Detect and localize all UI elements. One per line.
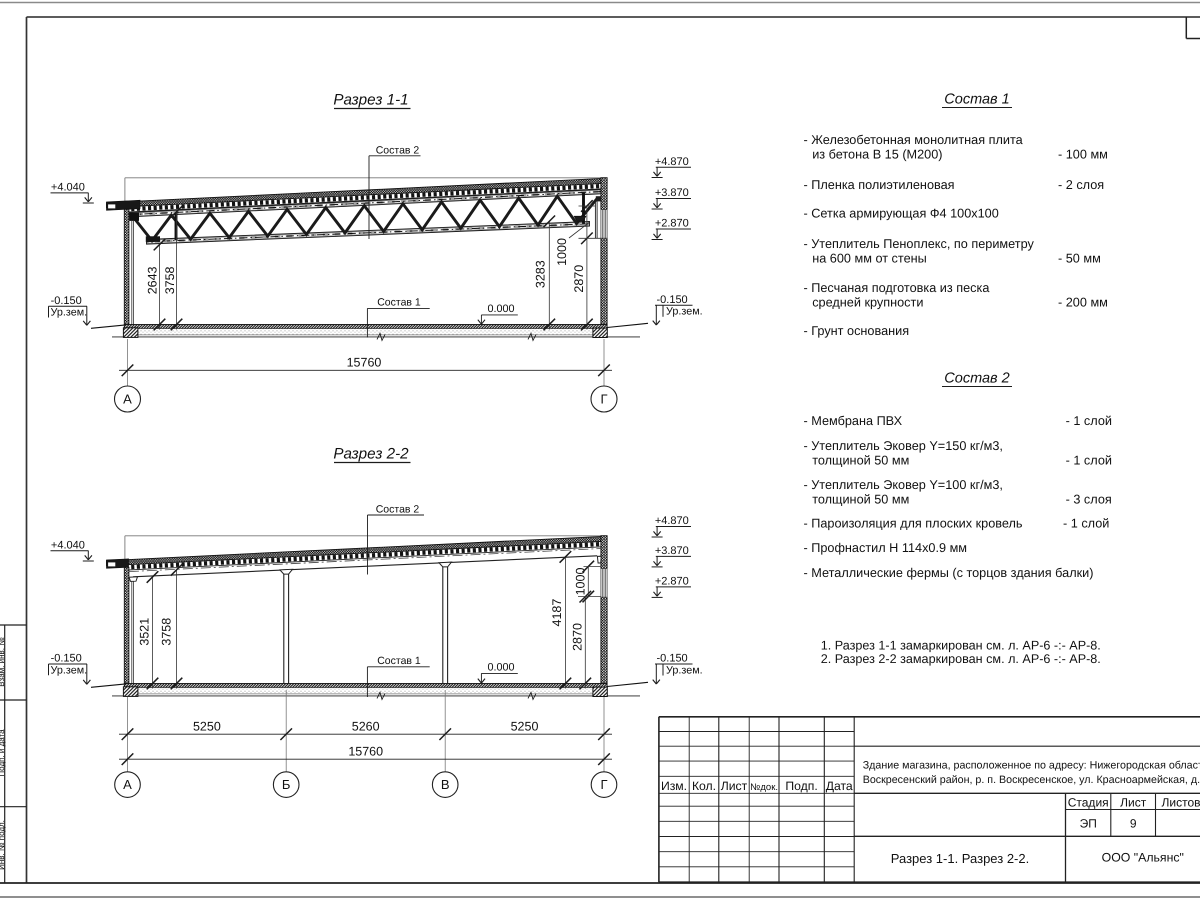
svg-text:Ур.зем.: Ур.зем. <box>51 664 88 676</box>
svg-text:3521: 3521 <box>138 618 152 646</box>
svg-text:5260: 5260 <box>352 720 380 734</box>
svg-text:Лист: Лист <box>1120 795 1147 809</box>
svg-text:- 50 мм: - 50 мм <box>1058 252 1101 266</box>
svg-text:Разрез 1-1. Разрез 2-2.: Разрез 1-1. Разрез 2-2. <box>891 851 1029 866</box>
svg-text:Здание магазина, расположенное: Здание магазина, расположенное по адресу… <box>863 760 1200 772</box>
svg-text:Разрез 1-1: Разрез 1-1 <box>333 92 408 109</box>
svg-text:3758: 3758 <box>163 266 177 294</box>
svg-text:- Мембрана ПВХ: - Мембрана ПВХ <box>804 414 903 428</box>
svg-text:1000: 1000 <box>555 238 569 266</box>
svg-text:2870: 2870 <box>572 265 586 293</box>
svg-text:+4.040: +4.040 <box>51 539 85 551</box>
svg-text:+4.870: +4.870 <box>655 156 689 168</box>
svg-text:А: А <box>123 392 132 407</box>
svg-text:2643: 2643 <box>146 266 160 294</box>
svg-text:Состав 2: Состав 2 <box>944 371 1009 387</box>
svg-text:9: 9 <box>1130 817 1137 831</box>
svg-text:5250: 5250 <box>193 720 221 734</box>
svg-text:- Профнастил Н 114х0.9 мм: - Профнастил Н 114х0.9 мм <box>804 541 968 555</box>
svg-text:+3.870: +3.870 <box>655 545 689 557</box>
svg-text:- Железобетонная монолитная п: - Железобетонная монолитная плита <box>804 133 1024 147</box>
svg-text:+2.870: +2.870 <box>655 218 689 230</box>
svg-text:ООО "Альянс": ООО "Альянс" <box>1102 851 1184 865</box>
svg-text:- Грунт основания: - Грунт основания <box>804 324 910 338</box>
svg-text:- 2 слоя: - 2 слоя <box>1058 178 1104 192</box>
svg-text:- Утеплитель Эковер Y=100 кг/м: - Утеплитель Эковер Y=100 кг/м3, <box>804 478 1003 492</box>
svg-text:- Пароизоляция для плоских кро: - Пароизоляция для плоских кровель <box>804 517 1023 531</box>
svg-text:из бетона В 15 (М200): из бетона В 15 (М200) <box>812 148 942 162</box>
svg-text:- 1 слой: - 1 слой <box>1066 454 1112 468</box>
svg-text:Состав 1: Состав 1 <box>377 297 421 309</box>
svg-text:Разрез 2-2: Разрез 2-2 <box>333 446 409 463</box>
svg-text:А: А <box>123 777 132 792</box>
svg-text:5250: 5250 <box>511 720 539 734</box>
svg-text:Состав 1: Состав 1 <box>944 92 1009 108</box>
svg-text:- 1 слой: - 1 слой <box>1063 517 1109 531</box>
svg-text:1. Разрез 1-1 замаркирован см.: 1. Разрез 1-1 замаркирован см. л. АР-6 -… <box>821 639 1101 653</box>
svg-text:4187: 4187 <box>550 599 564 627</box>
svg-text:средней крупности: средней крупности <box>812 296 923 310</box>
svg-text:+2.870: +2.870 <box>655 576 689 588</box>
svg-text:Ур.зем.: Ур.зем. <box>51 307 88 319</box>
svg-text:толщиной 50 мм: толщиной 50 мм <box>812 493 909 507</box>
svg-text:- Утеплитель Эковер Y=150 кг/м: - Утеплитель Эковер Y=150 кг/м3, <box>804 439 1003 453</box>
svg-text:- Песчаная подготовка из песка: - Песчаная подготовка из песка <box>804 281 991 295</box>
svg-text:- Металлические фермы (с торцо: - Металлические фермы (с торцов здания б… <box>804 566 1094 580</box>
svg-text:-0.150: -0.150 <box>51 295 82 307</box>
svg-text:Воскресенский район, р. п. Вос: Воскресенский район, р. п. Воскресенское… <box>863 774 1200 786</box>
svg-text:№док.: №док. <box>750 782 778 793</box>
svg-text:Лист: Лист <box>721 779 748 793</box>
svg-text:- Сетка армирующая Ф4 100х100: - Сетка армирующая Ф4 100х100 <box>804 207 999 221</box>
svg-text:- 100 мм: - 100 мм <box>1058 148 1108 162</box>
svg-text:Б: Б <box>282 777 291 792</box>
svg-text:Состав 2: Состав 2 <box>376 144 420 156</box>
svg-text:- 200 мм: - 200 мм <box>1058 296 1108 310</box>
svg-text:- Пленка полиэтиленовая: - Пленка полиэтиленовая <box>804 178 955 192</box>
svg-text:+4.040: +4.040 <box>51 182 85 194</box>
svg-text:Состав 1: Состав 1 <box>377 655 421 667</box>
svg-text:2. Разрез 2-2 замаркирован см.: 2. Разрез 2-2 замаркирован см. л. АР-6 -… <box>821 652 1101 666</box>
svg-text:3758: 3758 <box>160 618 174 646</box>
svg-text:ЭП: ЭП <box>1080 817 1097 831</box>
svg-text:Ур.зем.: Ур.зем. <box>666 664 703 676</box>
svg-text:15760: 15760 <box>348 745 383 759</box>
svg-text:- Утеплитель Пеноплекс, по пер: - Утеплитель Пеноплекс, по периметру <box>804 237 1035 251</box>
svg-text:Изм.: Изм. <box>661 779 687 793</box>
svg-text:толщиной 50 мм: толщиной 50 мм <box>812 454 909 468</box>
svg-text:2870: 2870 <box>570 623 584 651</box>
svg-text:3283: 3283 <box>534 260 548 288</box>
svg-text:15760: 15760 <box>347 356 382 370</box>
svg-text:Инв. № подл.: Инв. № подл. <box>0 820 6 870</box>
svg-text:на 600 мм от стены: на 600 мм от стены <box>812 252 927 266</box>
svg-text:- 3 слоя: - 3 слоя <box>1066 493 1112 507</box>
svg-text:Г: Г <box>600 392 607 407</box>
svg-text:Взам. инв. №: Взам. инв. № <box>0 637 6 687</box>
svg-text:+3.870: +3.870 <box>655 187 689 199</box>
svg-text:Листов: Листов <box>1162 795 1200 809</box>
svg-text:Ур.зем.: Ур.зем. <box>666 306 703 318</box>
svg-text:Стадия: Стадия <box>1068 795 1109 809</box>
svg-text:Кол.: Кол. <box>692 779 716 793</box>
svg-text:Подп. и дата: Подп. и дата <box>0 729 6 777</box>
svg-text:+4.870: +4.870 <box>655 515 689 527</box>
svg-text:Дата: Дата <box>826 779 853 793</box>
svg-text:0.000: 0.000 <box>487 661 514 673</box>
svg-text:Состав 2: Состав 2 <box>376 504 420 516</box>
svg-text:- 1 слой: - 1 слой <box>1066 414 1112 428</box>
svg-text:-0.150: -0.150 <box>51 653 82 665</box>
svg-text:1000: 1000 <box>574 568 588 596</box>
svg-text:Подп.: Подп. <box>785 779 817 793</box>
svg-text:Г: Г <box>600 777 607 792</box>
svg-text:0.000: 0.000 <box>487 303 514 315</box>
svg-text:-0.150: -0.150 <box>656 294 687 306</box>
svg-text:-0.150: -0.150 <box>656 653 687 665</box>
svg-text:В: В <box>441 777 450 792</box>
